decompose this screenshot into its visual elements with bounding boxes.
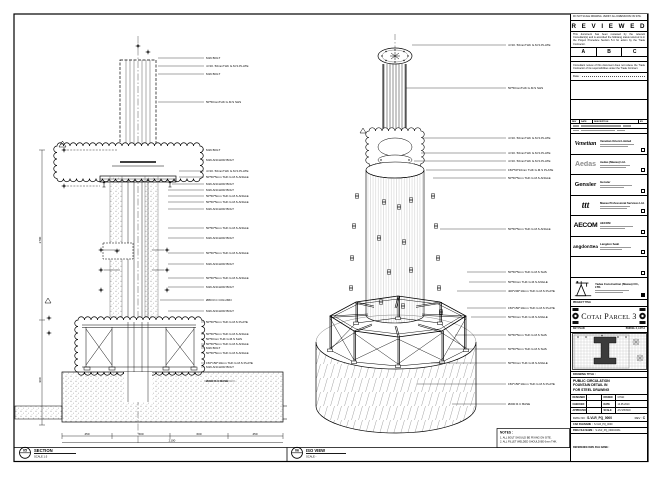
drawing-fields: DESIGNED- DRAWNCHAN CHECKED- DATE14.05.2… <box>571 395 647 415</box>
review-checkbox <box>641 209 645 213</box>
callout-label: 50*50mmTHK G.M.S SHS <box>508 86 543 90</box>
reviewed-title: R E V I E W E D <box>571 21 647 32</box>
svg-text:450: 450 <box>252 432 257 436</box>
status-a: A <box>571 48 597 56</box>
callout-label: 150*150*10mm THK G.M.S PLATE <box>508 306 555 310</box>
drawing-title-block: DRAWING TITLE : PUBLIC CIRCULATION FOUNT… <box>571 372 647 462</box>
callout-label: 400*200*10mm THK G.M.S PLATE <box>508 289 555 293</box>
review-checkbox <box>641 250 645 254</box>
date-col: DATE <box>580 120 593 123</box>
crane-logo <box>573 279 593 298</box>
svg-text:600: 600 <box>138 432 143 436</box>
status-c: C <box>622 48 647 56</box>
callout-label: 50*50mm THK G.M.S ANGLE <box>508 280 548 284</box>
callout-label: M16 ANCHOR BOLT <box>206 158 234 162</box>
company-row-macau-professional: ttt Macau Professional Services Ltd. <box>571 196 647 217</box>
scalloped-base-box <box>75 317 205 376</box>
company-name: Gensler <box>600 181 645 184</box>
aedas-logo: Aedas <box>573 161 598 168</box>
mps-logo: ttt <box>573 200 598 210</box>
consultant-list: Venetian Venetian Orient Limited Aedas A… <box>571 134 647 278</box>
contractor-block: Yadea Construction (Macau) CO., LTD. <box>571 278 647 300</box>
callout-label: 50*50mm THK G.M.S ANGLE <box>508 315 548 319</box>
callout-label: M16 BOLT <box>206 148 220 152</box>
key-plan-map <box>571 333 647 372</box>
callout-label: 4 NO. 50mmTHK G.M.S PLATE <box>508 136 550 140</box>
company-name: Macau Professional Services Ltd. <box>600 202 645 205</box>
iso-view: 4 NO. 50mmTHK G.M.S PLATE 50*50mmTHK G.M… <box>316 34 555 433</box>
reviewed-status-columns: A B C <box>571 48 647 57</box>
company-row-empty <box>571 257 647 278</box>
company-row-aedas: Aedas Aedas (Macau) Ltd. <box>571 155 647 176</box>
company-name: AECOM <box>600 222 645 225</box>
callout-label: M16 ANCHOR BOLT <box>206 365 234 369</box>
by-col: BY <box>639 120 647 123</box>
foundation <box>15 372 287 422</box>
key-plan-sublabel: PARCEL 3, LOT A <box>626 328 645 330</box>
company-name: Langdon Seah <box>600 243 645 246</box>
callout-label: 50*50*5mm THK G.M.S ANGLE <box>206 194 249 198</box>
callout-label: 50*50mmTHK G.M.S SHS <box>206 100 241 104</box>
reviewed-stamp: R E V I E W E D This document has been r… <box>571 21 647 120</box>
callout-label: Ø80 R.C COLUMN <box>206 298 232 302</box>
project-title-label: PROJECT TITLE <box>571 300 647 307</box>
callout-label: 50*50*5mm THK G.M.S ANGLE <box>508 176 551 180</box>
drawing-title: PUBLIC CIRCULATION FOUNTAIN DETAIL IN FO… <box>571 378 647 395</box>
aecom-logo: AECOM <box>573 222 598 229</box>
company-row-venetian: Venetian Venetian Orient Limited <box>571 134 647 155</box>
project-banner: Cotai Parcel 3 <box>571 307 647 327</box>
rev-col: REV <box>571 120 580 123</box>
reviewed-body-2: Consultant review of this document does … <box>571 62 647 72</box>
svg-text:SECTION: SECTION <box>34 448 53 453</box>
svg-text:900: 900 <box>38 377 42 382</box>
date-fill-line <box>582 75 645 77</box>
callout-label: 50*50*5mm THK G.M.S SHS <box>508 333 547 337</box>
svg-text:2100: 2100 <box>169 439 176 443</box>
callout-label: 4 NO. 50mmTHK G.M.S PLATE <box>206 64 248 68</box>
callout-label: M16 ANCHOR BOLT <box>206 182 234 186</box>
svg-text:ISO VIEW: ISO VIEW <box>306 448 325 453</box>
svg-text:2700: 2700 <box>38 236 42 243</box>
svg-text:SCALE -: SCALE - <box>306 455 317 459</box>
revision-table: REV DATE DESCRIPTION BY <box>571 120 647 134</box>
review-checkbox <box>641 189 645 193</box>
base-drum <box>316 315 476 433</box>
section-view-title: 05 SECTION SCALE 1:5 <box>20 447 77 458</box>
drawing-sheet: 1 450 600 600 450 2100 2700 900 <box>0 0 650 488</box>
callout-label: 4 NO. 50mmTHK G.M.S PLATE <box>508 151 550 155</box>
callout-label: 50*50*5mm THK G.M.S ANGLE <box>206 200 249 204</box>
callout-label: Ø200 R.C BASE <box>508 402 530 406</box>
drawing-canvas: 1 450 600 600 450 2100 2700 900 <box>0 0 650 488</box>
review-checkbox <box>641 148 645 152</box>
status-b: B <box>597 48 623 56</box>
callout-label: 150*50*10mm THK G.M.S PLATE <box>508 168 553 172</box>
review-checkbox <box>641 271 645 275</box>
svg-text:1. ALL BOLT SHOULD BE FIXING O: 1. ALL BOLT SHOULD BE FIXING ON SITE. <box>500 436 552 440</box>
company-row-gensler: Gensler Gensler <box>571 175 647 196</box>
reference-dwg-row: REFERENCE DWG FILE NAME : <box>571 434 647 461</box>
octagonal-frame <box>328 296 469 368</box>
svg-text:05: 05 <box>23 449 27 453</box>
date-label: Date : <box>573 74 580 78</box>
description-col: DESCRIPTION <box>593 120 639 123</box>
gensler-logo: Gensler <box>573 182 598 188</box>
langdon-seah-logo: LangdonSeah <box>573 244 598 249</box>
signature-row <box>571 81 647 101</box>
venetian-logo: Venetian <box>573 141 598 147</box>
review-checkbox <box>641 168 645 172</box>
callout-label: M16 BOLT <box>206 56 220 60</box>
key-plan-label: KEY PLAN <box>573 328 585 330</box>
project-title: Cotai Parcel 3 <box>581 312 637 321</box>
callout-label: M16 ANCHOR BOLT <box>206 188 234 192</box>
callout-label: 4 NO. 50mmTHK G.M.S PLATE <box>508 43 550 47</box>
callout-label: 50*50*5mm THK G.M.S ANGLE <box>206 276 249 280</box>
company-row-aecom: AECOM AECOM <box>571 216 647 237</box>
callout-label: M16 BOLT <box>206 346 220 350</box>
sheet-top-note: DO NOT SCALE DRAWING. VERIFY ALL DIMENSI… <box>571 14 647 21</box>
contractor-checkbox <box>641 293 645 297</box>
title-block-column: DO NOT SCALE DRAWING. VERIFY ALL DIMENSI… <box>570 14 648 461</box>
company-name: Venetian Orient Limited <box>600 140 645 143</box>
callout-label: 50*50mm THK G.M.S SHS <box>206 337 242 341</box>
reviewed-date-row: Date : <box>571 73 647 81</box>
callout-label: 50*50mm THK G.M.S ANGLE <box>508 361 548 365</box>
callout-label: M16 ANCHOR BOLT <box>206 285 234 289</box>
company-name: Aedas (Macau) Ltd. <box>600 161 645 164</box>
revision-row <box>571 129 647 133</box>
review-checkbox <box>641 230 645 234</box>
callout-label: 50*50*5mm THK G.M.S SHS <box>508 270 547 274</box>
notes-block: NOTES : 1. ALL BOLT SHOULD BE FIXING ON … <box>497 429 570 448</box>
svg-text:2. ALL FILLET WELDED SHOULD BE: 2. ALL FILLET WELDED SHOULD BE 6mm THK. <box>500 440 557 444</box>
svg-text:600: 600 <box>196 432 201 436</box>
banner-ornament-right <box>639 308 646 324</box>
callout-label: M16 ANCHOR BOLT <box>206 236 234 240</box>
banner-ornament-left <box>572 308 579 324</box>
callout-label: 50*50*5mm THK G.M.S PLATE <box>206 320 248 324</box>
svg-text:SCALE 1:5: SCALE 1:5 <box>34 455 48 459</box>
company-row-langdon-seah: LangdonSeah Langdon Seah <box>571 237 647 258</box>
callout-label: 50*50*5mm THK G.M.S ANGLE <box>206 175 249 179</box>
svg-text:NOTES :: NOTES : <box>500 431 513 435</box>
iso-view-title: 06 ISO VIEW SCALE - <box>292 447 347 458</box>
dwg-number-row: DWG NO : S-VLR_PQ_0000 REV : C <box>571 414 647 422</box>
callout-label: 4 NO. 50mmTHK G.M.S PLATE <box>206 169 248 173</box>
callout-label: M16 ANCHOR BOLT <box>206 262 234 266</box>
callout-label: 50*50*5mm THK G.M.S ANGLE <box>206 226 249 230</box>
contractor-name: Yadea Construction (Macau) CO., LTD. <box>595 283 645 289</box>
callout-label: 4 NO. 50mmTHK G.M.S PLATE <box>508 159 550 163</box>
signature-row <box>571 100 647 119</box>
reviewed-body-1: This document has been reviewed by the r… <box>571 32 647 49</box>
svg-text:06: 06 <box>295 449 299 453</box>
callout-label: M16 ANCHOR BOLT <box>206 207 234 211</box>
callout-label: 50*50*5mm THK G.M.S SHS <box>508 347 547 351</box>
callout-label: 50*50*5mm THK G.M.S ANGLE <box>206 332 249 336</box>
callout-label: Ø200 R.C BASE <box>206 379 228 383</box>
callout-label: M16 BOLT <box>206 72 220 76</box>
callout-label: 50*50*5mm THK G.M.S ANGLE <box>206 251 249 255</box>
callout-label: M16 ANCHOR BOLT <box>206 309 234 313</box>
callout-label: 150*150*10mm THK G.M.S PLATE <box>508 382 555 386</box>
callout-label: 50*50*5mm THK G.M.S ANGLE <box>508 227 551 231</box>
svg-text:450: 450 <box>84 432 89 436</box>
section-view: 1 450 600 600 450 2100 2700 900 <box>15 36 287 444</box>
callout-label: 50*50*5mm THK G.M.S ANGLE <box>206 351 249 355</box>
